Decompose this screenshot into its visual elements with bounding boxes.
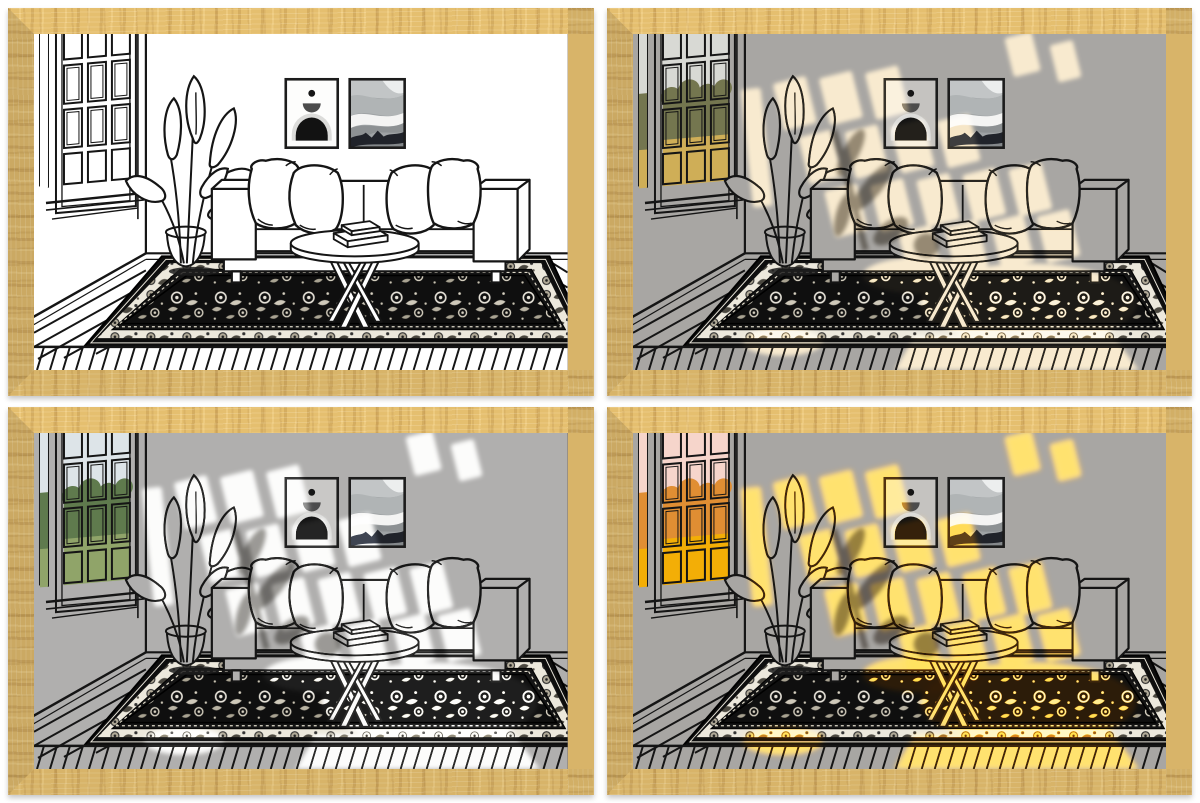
frame-bottom-left [8,407,594,795]
scene-cool-daylight [34,433,568,769]
frame-right-bar [568,8,594,396]
frame-top-bar [8,407,594,433]
frame-right-bar [1166,407,1192,795]
frame-bottom-bar [607,769,1193,795]
frame-top-bar [8,8,594,34]
scene-warm-afternoon-light [633,34,1167,370]
frame-top-bar [607,407,1193,433]
frame-right-bar [568,407,594,795]
frame-left-bar [8,8,34,396]
frame-bottom-bar [8,769,594,795]
frame-bottom-bar [8,370,594,396]
frame-top-right [607,8,1193,396]
frame-bottom-bar [607,370,1193,396]
frame-left-bar [607,8,633,396]
frame-right-bar [1166,8,1192,396]
frame-top-bar [607,8,1193,34]
framed-light-painting-collage [0,0,1200,803]
frame-left-bar [607,407,633,795]
scene-golden-sunset-light [633,433,1167,769]
frame-bottom-right [607,407,1193,795]
frame-left-bar [8,407,34,795]
frame-top-left [8,8,594,396]
scene-plain-line-art [34,34,568,370]
